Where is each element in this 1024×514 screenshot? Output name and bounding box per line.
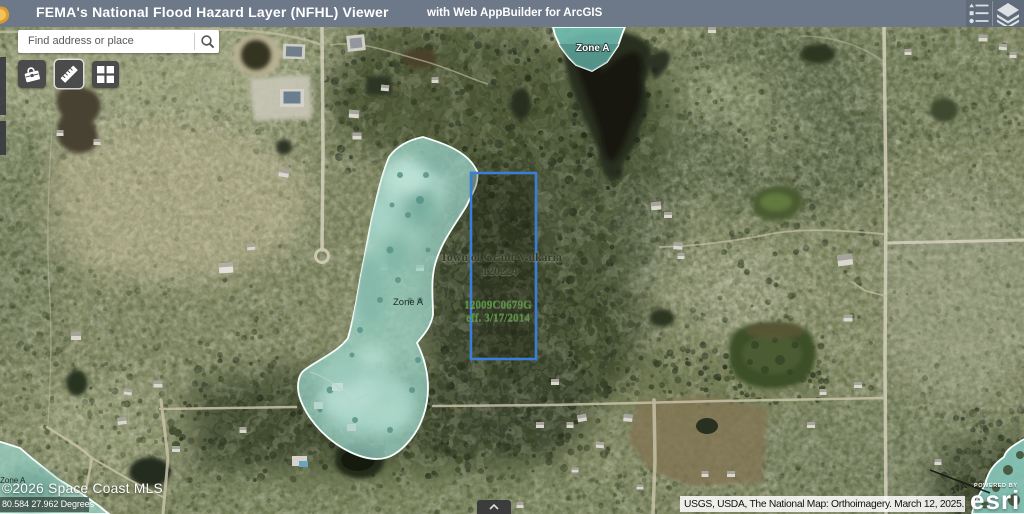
svg-text:Zone A: Zone A: [393, 297, 424, 308]
svg-text:Zone A: Zone A: [576, 43, 610, 54]
svg-text:12009C0679G: 12009C0679G: [464, 299, 532, 311]
svg-text:Town of Grant-Valkaria: Town of Grant-Valkaria: [440, 250, 562, 264]
svg-text:eff. 3/17/2014: eff. 3/17/2014: [466, 312, 530, 324]
svg-text:120224: 120224: [482, 264, 517, 278]
